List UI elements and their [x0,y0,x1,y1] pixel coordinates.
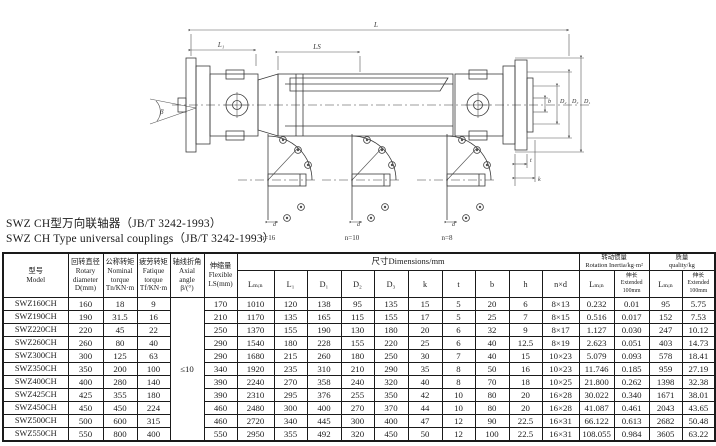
dim-label-d: d [452,222,456,228]
lmin-cell: 1010 [237,298,274,311]
nominal-torque-cell: 280 [103,376,137,389]
nxd-cell: 10×23 [542,363,579,376]
header-row-groups: 型号 Model 回转直径 Rotary diameter D(mm) 公称转矩… [3,253,715,271]
col-header-l1: L₁ [274,271,307,298]
d2-cell: 155 [341,337,374,350]
b-cell: 40 [475,350,509,363]
dim-label-beta: β [159,108,164,116]
inertia-extended-cell: 0.030 [614,324,649,337]
b-cell: 80 [475,389,509,402]
table-row: SWZ220CH22045222501370155190130180206329… [3,324,715,337]
d2-cell: 115 [341,311,374,324]
dim-label-t: t [530,158,532,164]
t-cell: 6 [442,337,475,350]
h-cell: 9 [509,324,542,337]
table-body: SWZ160CH160189≤1017010101201389513515520… [3,298,715,442]
d1-cell: 228 [307,337,341,350]
col-header-rotary-diameter: 回转直径 Rotary diameter D(mm) [68,253,103,298]
lmin-cell: 1170 [237,311,274,324]
d1-cell: 260 [307,350,341,363]
technical-drawing: L L₁ LS β [0,0,716,250]
h-cell: 20 [509,402,542,415]
quality-lmin-cell: 2682 [649,415,682,428]
nxd-cell: 16×31 [542,428,579,442]
model-cell: SWZ160CH [3,298,68,311]
col-header-d1: D₁ [307,271,341,298]
table-row: SWZ260CH26080402901540180228155220256401… [3,337,715,350]
col-header-axial-angle: 轴线折角 Axial angle β/(°) [170,253,204,298]
inertia-lmin-cell: 108.055 [579,428,614,442]
inertia-lmin-cell: 11.746 [579,363,614,376]
flexible-cell: 250 [204,324,237,337]
fatigue-torque-cell: 22 [137,324,170,337]
nxd-cell: 10×23 [542,350,579,363]
t-cell: 12 [442,428,475,442]
flexible-cell: 290 [204,337,237,350]
t-cell: 10 [442,402,475,415]
h-cell: 16 [509,363,542,376]
d2-cell: 320 [341,428,374,442]
lmin-cell: 1680 [237,350,274,363]
inertia-extended-cell: 0.340 [614,389,649,402]
rotary-diameter-cell: 500 [68,415,103,428]
inertia-lmin-cell: 66.122 [579,415,614,428]
d2-cell: 270 [341,402,374,415]
k-cell: 30 [408,350,442,363]
quality-lmin-cell: 95 [649,298,682,311]
inertia-lmin-cell: 2.623 [579,337,614,350]
k-cell: 40 [408,376,442,389]
inertia-lmin-cell: 1.127 [579,324,614,337]
h-cell: 7 [509,311,542,324]
table-row: SWZ160CH160189≤1017010101201389513515520… [3,298,715,311]
coupling-spec-table: 型号 Model 回转直径 Rotary diameter D(mm) 公称转矩… [2,252,716,442]
d3-cell: 400 [374,415,408,428]
dim-overall-length: L [191,21,569,56]
t-cell: 6 [442,324,475,337]
dim-label-L1: L₁ [217,41,224,49]
col-header-h: h [509,271,542,298]
d3-cell: 180 [374,324,408,337]
flexible-cell: 210 [204,311,237,324]
nxd-cell: 16×28 [542,402,579,415]
datasheet-page: L L₁ LS β [0,0,716,446]
lmin-cell: 2240 [237,376,274,389]
fatigue-torque-cell: 400 [137,428,170,442]
table-row: SWZ500CH50060031546027203404453004004712… [3,415,715,428]
h-cell: 22.5 [509,428,542,442]
h-cell: 22.5 [509,415,542,428]
lmin-cell: 2480 [237,402,274,415]
rotary-diameter-cell: 550 [68,428,103,442]
quality-lmin-cell: 3605 [649,428,682,442]
quality-lmin-cell: 2043 [649,402,682,415]
l1-cell: 355 [274,428,307,442]
inertia-extended-cell: 0.051 [614,337,649,350]
inertia-extended-cell: 0.461 [614,402,649,415]
nominal-torque-cell: 125 [103,350,137,363]
l1-cell: 295 [274,389,307,402]
table-row: SWZ400CH40028014039022402703582403204087… [3,376,715,389]
dim-left-length: L₁ [191,41,256,66]
d3-cell: 250 [374,350,408,363]
l1-cell: 235 [274,363,307,376]
col-header-fatigue-torque: 疲劳转矩 Fatique torque Tf/KN·m [137,253,170,298]
d2-cell: 130 [341,324,374,337]
nominal-torque-cell: 450 [103,402,137,415]
nxd-cell: 16×31 [542,415,579,428]
flange-detail-n10: d n=10 [322,134,402,242]
h-cell: 18 [509,376,542,389]
axial-angle-cell: ≤10 [170,298,204,442]
dim-t-k: t k [515,140,541,186]
flexible-cell: 460 [204,402,237,415]
title-zh: SWZ CH型万向联轴器（JB/T 3242-1993） [6,217,275,232]
quality-extended-cell: 43.65 [682,402,715,415]
lmin-cell: 1540 [237,337,274,350]
fatigue-torque-cell: 100 [137,363,170,376]
nxd-cell: 8×13 [542,298,579,311]
d2-cell: 95 [341,298,374,311]
col-header-lmin: Lₘᵢₙ [237,271,274,298]
d2-cell: 255 [341,389,374,402]
k-cell: 42 [408,389,442,402]
b-cell: 50 [475,363,509,376]
lmin-cell: 1920 [237,363,274,376]
dim-label-b: b [548,99,551,105]
b-cell: 40 [475,337,509,350]
flange-detail-n8: d n=8 [417,134,497,242]
inertia-extended-cell: 0.017 [614,311,649,324]
quality-extended-cell: 7.53 [682,311,715,324]
fatigue-torque-cell: 140 [137,376,170,389]
d1-cell: 310 [307,363,341,376]
lmin-cell: 2950 [237,428,274,442]
t-cell: 10 [442,389,475,402]
d3-cell: 155 [374,311,408,324]
col-header-nxd: n×d [542,271,579,298]
d1-cell: 400 [307,402,341,415]
rotary-diameter-cell: 260 [68,337,103,350]
l1-cell: 120 [274,298,307,311]
model-cell: SWZ550CH [3,428,68,442]
detail-label-n10: n=10 [345,234,360,242]
nxd-cell: 16×28 [542,389,579,402]
inertia-extended-cell: 0.613 [614,415,649,428]
l1-cell: 300 [274,402,307,415]
nominal-torque-cell: 31.5 [103,311,137,324]
rotary-diameter-cell: 450 [68,402,103,415]
quality-lmin-cell: 247 [649,324,682,337]
h-cell: 20 [509,389,542,402]
flexible-cell: 290 [204,350,237,363]
b-cell: 90 [475,415,509,428]
d1-cell: 492 [307,428,341,442]
flexible-cell: 340 [204,363,237,376]
col-header-t: t [442,271,475,298]
d2-cell: 300 [341,415,374,428]
fatigue-torque-cell: 180 [137,389,170,402]
flexible-cell: 550 [204,428,237,442]
quality-extended-cell: 14.73 [682,337,715,350]
dim-label-D2: D₂ [559,99,566,105]
d1-cell: 376 [307,389,341,402]
flexible-cell: 170 [204,298,237,311]
dim-slide-length: LS [278,43,360,72]
l1-cell: 155 [274,324,307,337]
model-cell: SWZ260CH [3,337,68,350]
quality-lmin-cell: 152 [649,311,682,324]
nxd-cell: 8×15 [542,311,579,324]
b-cell: 32 [475,324,509,337]
col-header-inertia-lmin: Lₘᵢₙ [579,271,614,298]
model-cell: SWZ300CH [3,350,68,363]
nxd-cell: 8×19 [542,337,579,350]
t-cell: 12 [442,415,475,428]
fatigue-torque-cell: 9 [137,298,170,311]
h-cell: 15 [509,350,542,363]
rotary-diameter-cell: 425 [68,389,103,402]
quality-extended-cell: 32.38 [682,376,715,389]
rotary-diameter-cell: 350 [68,363,103,376]
rotary-diameter-cell: 190 [68,311,103,324]
table-row: SWZ190CH19031.51621011701351651151551752… [3,311,715,324]
col-group-rotation-inertia: 转动惯量 Rotation Inertia/kg·m² [579,253,649,271]
t-cell: 7 [442,350,475,363]
dim-label-LS: LS [312,43,321,51]
nominal-torque-cell: 200 [103,363,137,376]
table-row: SWZ450CH45045022446024803004002703704410… [3,402,715,415]
title-en: SWZ CH Type universal couplings（JB/T 324… [6,232,275,247]
nxd-cell: 8×17 [542,324,579,337]
flexible-cell: 390 [204,389,237,402]
quality-extended-cell: 63.22 [682,428,715,442]
d1-cell: 358 [307,376,341,389]
l1-cell: 180 [274,337,307,350]
model-cell: SWZ450CH [3,402,68,415]
k-cell: 25 [408,337,442,350]
b-cell: 70 [475,376,509,389]
inertia-lmin-cell: 21.800 [579,376,614,389]
d3-cell: 350 [374,389,408,402]
table-container: 型号 Model 回转直径 Rotary diameter D(mm) 公称转矩… [2,252,714,442]
inertia-extended-cell: 0.984 [614,428,649,442]
model-cell: SWZ220CH [3,324,68,337]
quality-extended-cell: 38.01 [682,389,715,402]
l1-cell: 340 [274,415,307,428]
flexible-cell: 460 [204,415,237,428]
l1-cell: 270 [274,376,307,389]
b-cell: 25 [475,311,509,324]
table-row: SWZ425CH42535518039023102953762553504210… [3,389,715,402]
col-header-quality-lmin: Lₘᵢₙ [649,271,682,298]
dim-label-L: L [373,21,378,29]
model-cell: SWZ350CH [3,363,68,376]
fatigue-torque-cell: 40 [137,337,170,350]
inertia-lmin-cell: 0.232 [579,298,614,311]
quality-extended-cell: 50.48 [682,415,715,428]
quality-extended-cell: 10.12 [682,324,715,337]
k-cell: 35 [408,363,442,376]
quality-lmin-cell: 1671 [649,389,682,402]
dim-axial-angle: β [150,99,196,124]
k-cell: 47 [408,415,442,428]
model-cell: SWZ425CH [3,389,68,402]
col-header-b: b [475,271,509,298]
right-joint [455,60,533,150]
lmin-cell: 2720 [237,415,274,428]
inertia-lmin-cell: 41.087 [579,402,614,415]
quality-extended-cell: 18.41 [682,350,715,363]
d3-cell: 290 [374,363,408,376]
title-block: SWZ CH型万向联轴器（JB/T 3242-1993） SWZ CH Type… [6,217,275,247]
inertia-lmin-cell: 5.079 [579,350,614,363]
d2-cell: 210 [341,363,374,376]
k-cell: 17 [408,311,442,324]
t-cell: 8 [442,363,475,376]
nominal-torque-cell: 600 [103,415,137,428]
d3-cell: 135 [374,298,408,311]
flexible-cell: 390 [204,376,237,389]
t-cell: 5 [442,311,475,324]
d1-cell: 138 [307,298,341,311]
col-group-quality: 质量 quality/kg [649,253,715,271]
lmin-cell: 2310 [237,389,274,402]
col-header-nominal-torque: 公称转矩 Nominal torque Tn/KN·m [103,253,137,298]
h-cell: 12.5 [509,337,542,350]
b-cell: 100 [475,428,509,442]
lmin-cell: 1370 [237,324,274,337]
model-cell: SWZ400CH [3,376,68,389]
k-cell: 20 [408,324,442,337]
quality-lmin-cell: 403 [649,337,682,350]
col-header-k: k [408,271,442,298]
inertia-lmin-cell: 30.022 [579,389,614,402]
inertia-lmin-cell: 0.516 [579,311,614,324]
d3-cell: 320 [374,376,408,389]
model-cell: SWZ190CH [3,311,68,324]
fatigue-torque-cell: 315 [137,415,170,428]
d1-cell: 445 [307,415,341,428]
inertia-extended-cell: 0.262 [614,376,649,389]
fatigue-torque-cell: 224 [137,402,170,415]
k-cell: 15 [408,298,442,311]
col-header-d3: D₃ [374,271,408,298]
rotary-diameter-cell: 400 [68,376,103,389]
quality-extended-cell: 27.19 [682,363,715,376]
table-row: SWZ350CH35020010034019202353102102903585… [3,363,715,376]
d1-cell: 190 [307,324,341,337]
rotary-diameter-cell: 300 [68,350,103,363]
quality-lmin-cell: 959 [649,363,682,376]
col-group-dimensions: 尺寸Dimensions/mm [237,253,579,271]
nominal-torque-cell: 80 [103,337,137,350]
quality-extended-cell: 5.75 [682,298,715,311]
k-cell: 50 [408,428,442,442]
table-row: SWZ300CH30012563290168021526018025030740… [3,350,715,363]
nominal-torque-cell: 18 [103,298,137,311]
d3-cell: 220 [374,337,408,350]
model-cell: SWZ500CH [3,415,68,428]
col-header-d2: D₂ [341,271,374,298]
b-cell: 20 [475,298,509,311]
dim-label-D1: D₁ [583,99,590,105]
rotary-diameter-cell: 160 [68,298,103,311]
quality-lmin-cell: 1398 [649,376,682,389]
inertia-extended-cell: 0.185 [614,363,649,376]
k-cell: 44 [408,402,442,415]
col-header-flexible: 伸缩量 Flexible LS(mm) [204,253,237,298]
quality-lmin-cell: 578 [649,350,682,363]
nominal-torque-cell: 355 [103,389,137,402]
col-header-inertia-extended: 伸长 Extended 100mm [614,271,649,298]
inertia-extended-cell: 0.01 [614,298,649,311]
detail-label-n8: n=8 [442,234,453,242]
nxd-cell: 10×25 [542,376,579,389]
col-header-model: 型号 Model [3,253,68,298]
h-cell: 6 [509,298,542,311]
d3-cell: 370 [374,402,408,415]
fatigue-torque-cell: 63 [137,350,170,363]
inertia-extended-cell: 0.093 [614,350,649,363]
rotary-diameter-cell: 220 [68,324,103,337]
d3-cell: 450 [374,428,408,442]
l1-cell: 215 [274,350,307,363]
table-row: SWZ550CH55080040055029503554923204505012… [3,428,715,442]
d2-cell: 240 [341,376,374,389]
dim-label-D3: D₃ [571,99,578,105]
d2-cell: 180 [341,350,374,363]
dim-label-k: k [538,177,541,183]
nominal-torque-cell: 800 [103,428,137,442]
t-cell: 8 [442,376,475,389]
t-cell: 5 [442,298,475,311]
col-header-quality-extended: 伸长 Extended 100mm [682,271,715,298]
l1-cell: 135 [274,311,307,324]
d1-cell: 165 [307,311,341,324]
b-cell: 80 [475,402,509,415]
dim-label-d: d [357,222,361,228]
fatigue-torque-cell: 16 [137,311,170,324]
nominal-torque-cell: 45 [103,324,137,337]
